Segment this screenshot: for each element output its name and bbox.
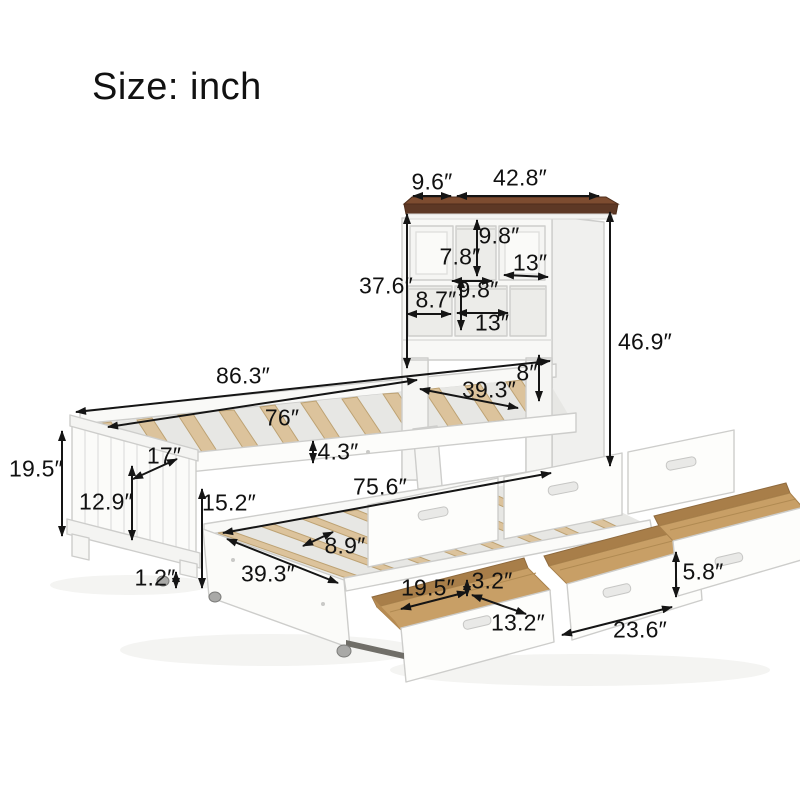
dim-footboard-panel-height: 12.9″ (79, 489, 133, 516)
bed-diagram-illustration (0, 0, 800, 800)
dim-trundle-height: 15.2″ (202, 490, 256, 517)
dim-headboard-top-width: 42.8″ (493, 165, 547, 192)
dim-trundle-length: 75.6″ (353, 474, 407, 501)
dim-headboard-total-height: 46.9″ (618, 329, 672, 356)
dim-bed-width: 39.3″ (462, 377, 516, 404)
dim-headboard-shelf-height: 37.6″ (359, 273, 413, 300)
dim-drawer-front-length: 23.6″ (613, 617, 667, 644)
dim-floor-clearance: 1.2″ (135, 565, 176, 592)
dim-slat-spacing: 8.9″ (325, 533, 366, 560)
dim-cubby-top-height: 9.8″ (479, 223, 520, 250)
dim-slat-rail-height: 4.3″ (318, 439, 359, 466)
dim-foot-end-height: 19.5″ (9, 456, 63, 483)
dim-cubby-top-width: 7.8″ (440, 244, 481, 271)
dim-cubby-mid-width: 13″ (475, 310, 509, 337)
dim-cubby-mid-height: 9.8″ (458, 277, 499, 304)
dim-drawer-inner-length: 19.5″ (401, 575, 455, 602)
dim-cubby-top-right-width: 13″ (513, 250, 547, 277)
dim-drawer-rail-gap: 3.2″ (472, 568, 513, 595)
page-title: Size: inch (92, 66, 262, 109)
dim-footboard-depth: 17″ (147, 443, 181, 470)
dim-cubby-left-width: 8.7″ (416, 287, 457, 314)
dim-headboard-top-depth: 9.6″ (412, 169, 453, 196)
dim-trundle-width: 39.3″ (241, 561, 295, 588)
dim-drawer-front-height: 5.8″ (683, 559, 724, 586)
product-dimension-diagram: Size: inch 9.6″ 42.8″ 7.8″ 9.8″ 13″ 8.7″… (0, 0, 800, 800)
dim-slat-length: 76″ (265, 405, 299, 432)
dim-bed-total-length: 86.3″ (216, 363, 270, 390)
dim-headboard-gap-height: 8″ (516, 360, 537, 387)
dim-drawer-inner-width: 13.2″ (491, 610, 545, 637)
